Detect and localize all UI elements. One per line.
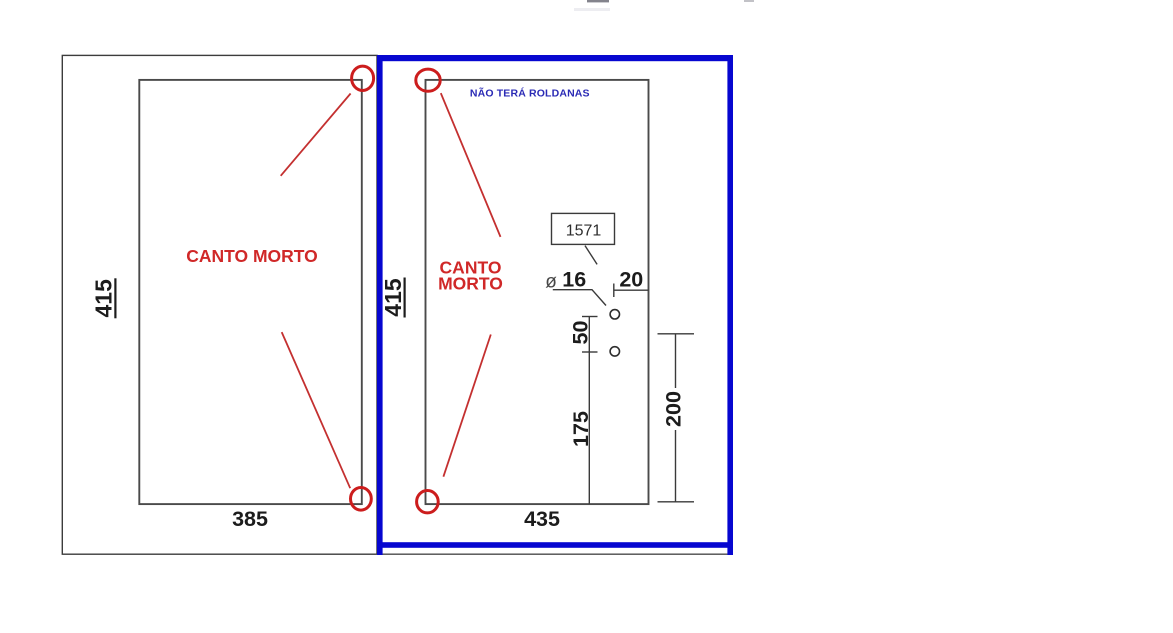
svg-text:MORTO: MORTO	[438, 274, 503, 294]
svg-text:415: 415	[91, 279, 117, 318]
svg-text:435: 435	[524, 507, 560, 531]
svg-text:385: 385	[232, 507, 268, 531]
svg-text:415: 415	[380, 278, 406, 317]
svg-text:CANTO MORTO: CANTO MORTO	[186, 246, 318, 266]
svg-text:175: 175	[569, 411, 593, 447]
svg-text:50: 50	[569, 321, 593, 345]
svg-text:200: 200	[662, 391, 686, 427]
svg-text:20: 20	[619, 268, 643, 292]
svg-text:16: 16	[562, 268, 586, 292]
svg-text:1571: 1571	[566, 223, 602, 240]
svg-text:NÃO TERÁ ROLDANAS: NÃO TERÁ ROLDANAS	[470, 87, 590, 100]
